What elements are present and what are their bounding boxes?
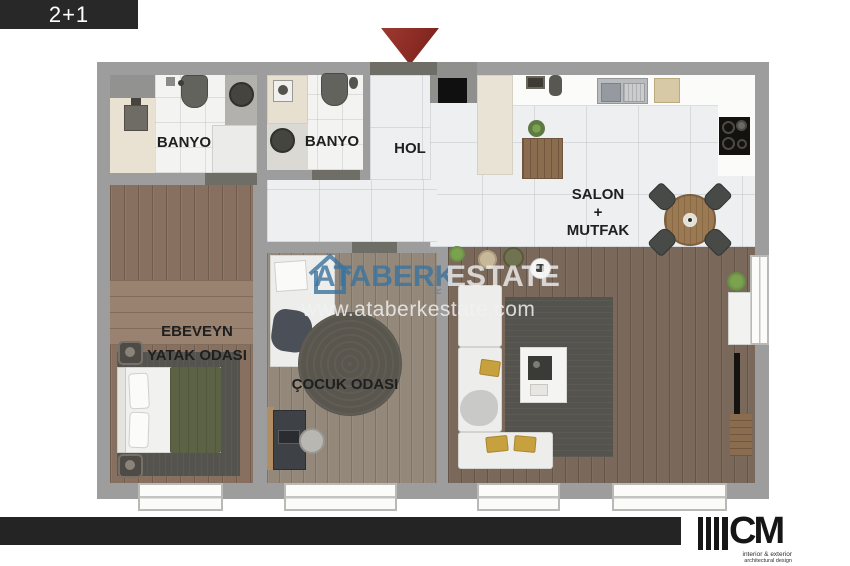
cm-logo-tagline2: architectural design [726,558,792,564]
kitchen-column [477,75,513,175]
label-salon-mutfak: SALON + MUTFAK [548,186,648,240]
window-living-right [612,483,727,511]
cushion-icon [513,435,536,453]
label-banyo-1: BANYO [139,134,229,151]
bath-accessory-icon [178,80,184,86]
watermark-brand2-text: ESTATE [446,260,560,294]
water-heater-icon [549,75,562,96]
nightstand-icon [118,454,143,478]
toilet-icon [321,73,348,106]
wood-cabinet [522,138,563,179]
throw-blanket-icon [460,390,498,426]
cooktop-icon [719,117,750,155]
entrance-door-threshold [370,62,437,75]
entrance-arrow-icon [381,28,439,65]
cm-logo-bar [714,517,719,550]
footer-bar [0,517,681,545]
label-child-room: ÇOCUK ODASI [270,376,420,393]
wall-art-icon [526,76,545,89]
blanket-icon [170,367,221,453]
cutting-board-icon [654,78,680,103]
tv-console [730,414,752,456]
plant-icon [727,272,746,291]
window-right-wall [750,255,769,345]
cm-logo: CM interior & exterior architectural des… [698,513,808,561]
label-hol: HOL [365,140,455,157]
pillow-icon [128,412,149,449]
banyo2-door-threshold [312,170,360,180]
plant-icon [528,120,545,137]
bath-accessory-icon [349,77,358,89]
entry-hall-floor [370,75,430,180]
cm-logo-tagline1: interior & exterior [726,551,792,558]
cm-logo-monogram: CM [729,510,782,553]
cm-logo-bar [698,517,703,550]
banyo1-door-threshold [205,173,257,185]
tray-icon [528,356,552,380]
sink-basin-icon [229,82,254,107]
book-icon [530,384,548,396]
label-salon-line1: SALON [548,186,648,204]
watermark: ATABERK REAL ESTATE www.ataberkestate.co… [300,246,590,332]
utility-counter [110,75,155,98]
pillow-icon [128,373,150,410]
toilet-icon [181,75,208,108]
washing-machine-icon [273,80,293,102]
label-salon-line3: MUTFAK [548,222,648,240]
window-child [284,483,397,511]
window-living-left [477,483,560,511]
label-ebeveyn-line2: YATAK ODASI [127,344,267,368]
cm-logo-bar [706,517,711,550]
watermark-url: www.ataberkestate.com [302,298,535,322]
kitchen-sink-icon [597,78,648,104]
watermark-vertical-text: REAL [433,263,443,295]
bath-shelf-icon [166,77,175,86]
window-master [138,483,223,511]
doormat [438,78,467,103]
label-ebeveyn-line1: EBEVEYN [127,320,267,344]
label-master-bedroom: EBEVEYN YATAK ODASI [127,320,267,368]
floorplan-page: 2+1 [0,0,850,566]
label-banyo-2: BANYO [287,133,377,150]
corridor-floor [267,180,437,242]
cushion-icon [485,435,509,453]
cushion-icon [479,359,501,378]
plan-type-badge: 2+1 [0,0,138,29]
desk-chair-icon [299,428,325,454]
washing-machine-icon [124,105,148,131]
cm-logo-bar [722,517,728,550]
tv-unit [728,292,751,345]
label-salon-line2: + [548,204,648,222]
headboard [117,367,126,453]
laptop-icon [278,430,300,444]
